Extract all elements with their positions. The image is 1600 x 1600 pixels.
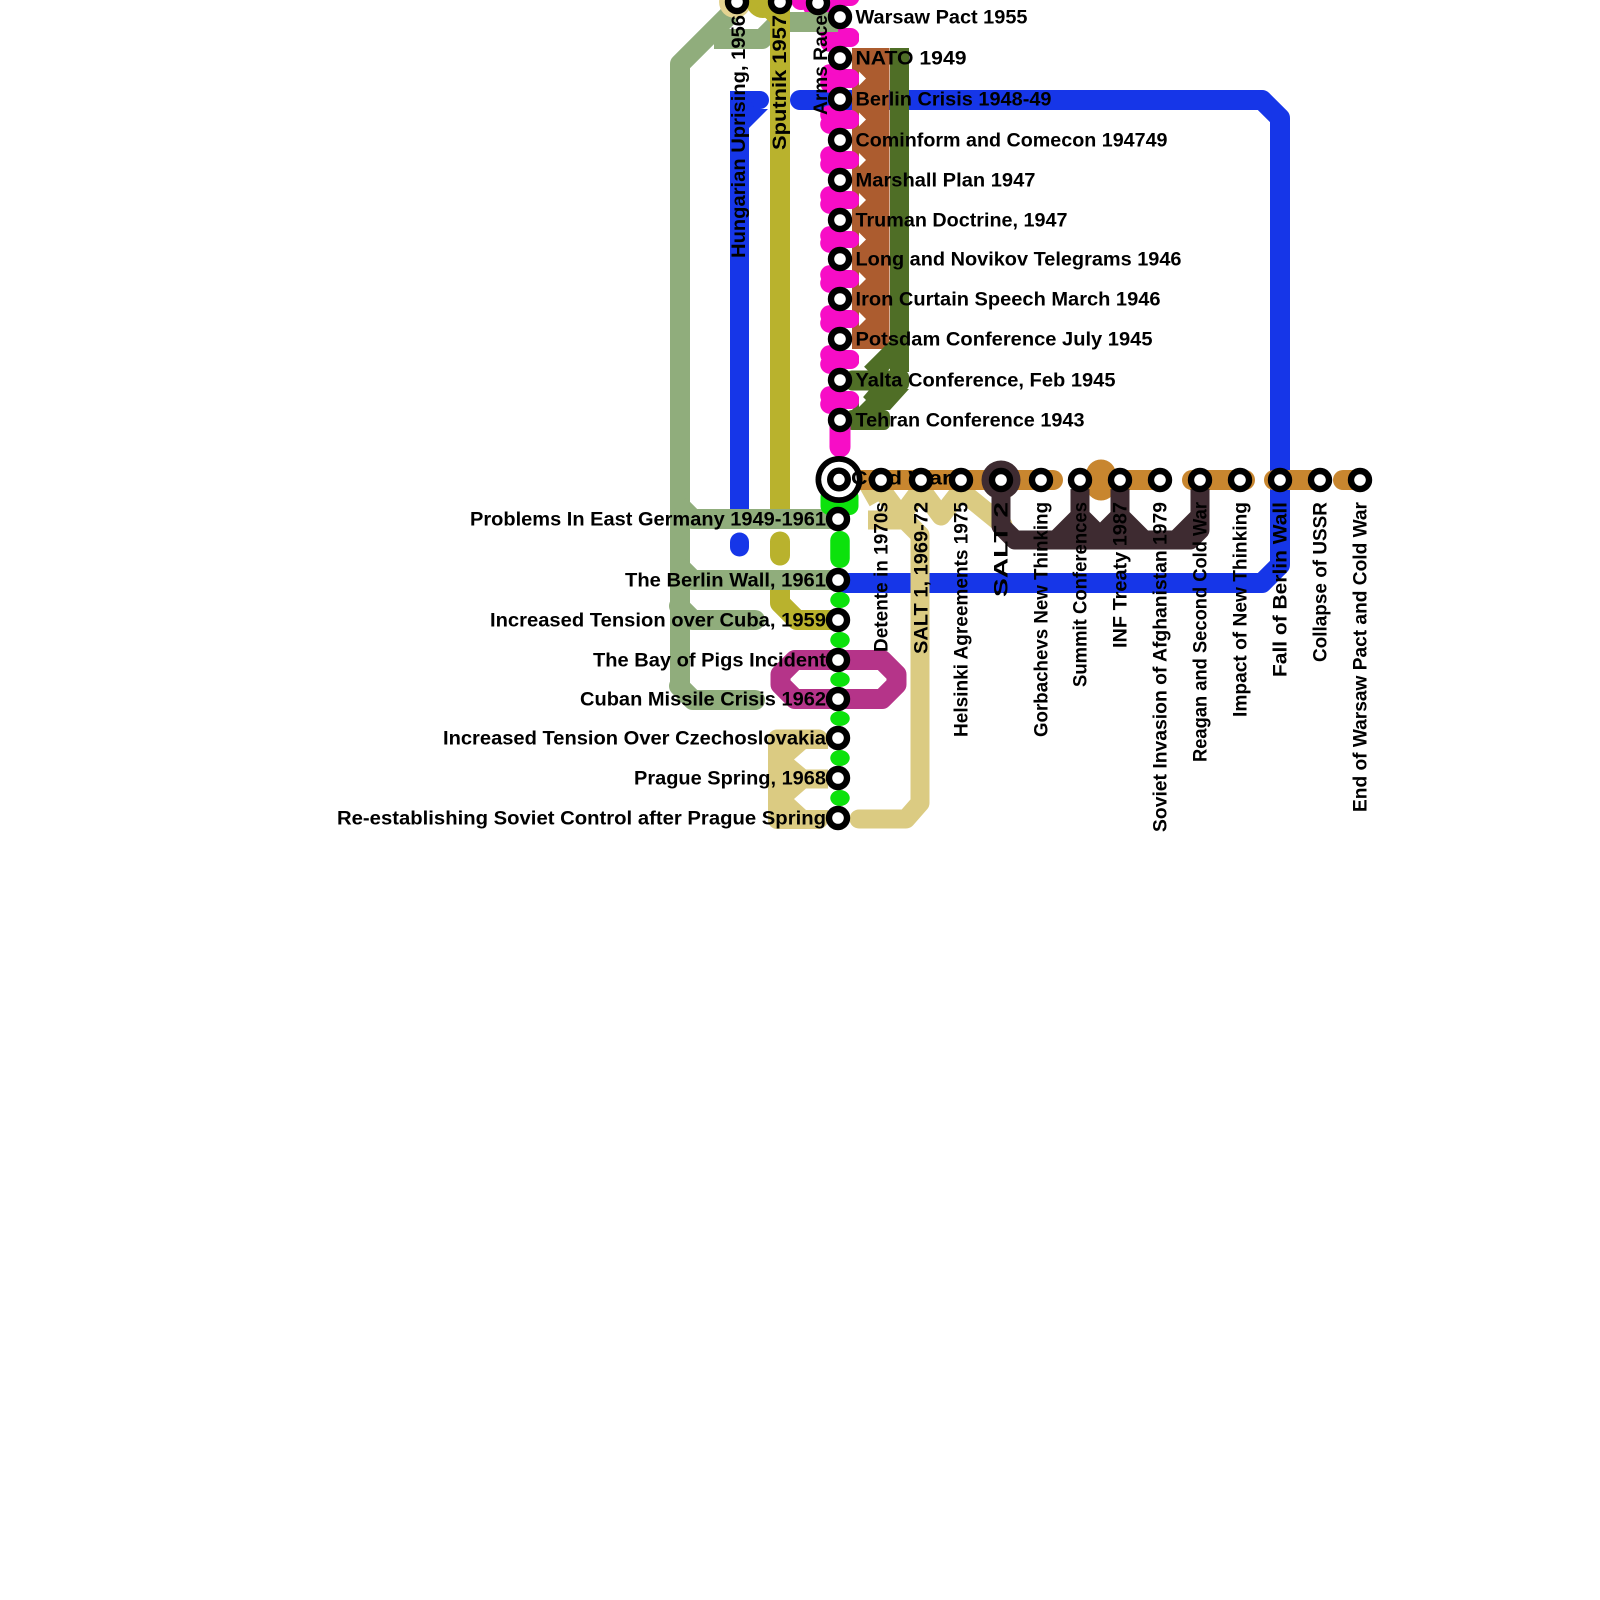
svg-text:Marshall Plan 1947: Marshall Plan 1947 <box>856 171 1036 192</box>
svg-text:Tehran Conference 1943: Tehran Conference 1943 <box>856 411 1085 432</box>
svg-text:Problems In East Germany 1949-: Problems In East Germany 1949-1961 <box>470 510 826 531</box>
svg-text:Impact of New Thinking: Impact of New Thinking <box>1231 502 1252 717</box>
svg-text:Soviet Invasion of Afghanistan: Soviet Invasion of Afghanistan 1979 <box>1151 502 1172 832</box>
svg-text:Prague Spring, 1968: Prague Spring, 1968 <box>634 769 826 790</box>
svg-text:Re-establishing Soviet Contro: Re-establishing Soviet Control after Pra… <box>337 809 826 830</box>
svg-text:Increased Tension over Cuba, 1: Increased Tension over Cuba, 1959 <box>490 611 826 632</box>
svg-text:End of Warsaw Pact and Cold Wa: End of Warsaw Pact and Cold War <box>1351 501 1372 812</box>
svg-text:Berlin Crisis 1948-49: Berlin Crisis 1948-49 <box>856 90 1052 111</box>
svg-text:SALT 1, 1969-72: SALT 1, 1969-72 <box>912 502 933 654</box>
svg-text:Gorbachevs New Thinking: Gorbachevs New Thinking <box>1032 502 1053 737</box>
svg-text:Sputnik 1957: Sputnik 1957 <box>770 15 791 150</box>
svg-text:Reagan and Second Cold War: Reagan and Second Cold War <box>1191 501 1212 762</box>
svg-text:Summit Conferences: Summit Conferences <box>1071 502 1092 687</box>
svg-text:Arms Race: Arms Race <box>811 15 832 115</box>
svg-text:Detente in 1970s: Detente in 1970s <box>872 502 893 652</box>
svg-text:Helsinki Agreements 1975: Helsinki Agreements 1975 <box>952 502 973 737</box>
svg-text:Cuban Missile Crisis 1962: Cuban Missile Crisis 1962 <box>580 690 826 711</box>
svg-text:Increased Tension Over Czechos: Increased Tension Over Czechoslovakia <box>443 729 826 750</box>
svg-text:Collapse of USSR: Collapse of USSR <box>1311 502 1332 662</box>
svg-text:NATO 1949: NATO 1949 <box>856 49 967 70</box>
svg-text:Truman Doctrine, 1947: Truman Doctrine, 1947 <box>856 211 1068 232</box>
svg-text:SALT 2: SALT 2 <box>992 502 1013 597</box>
svg-text:Fall of Berlin Wall: Fall of Berlin Wall <box>1271 502 1292 677</box>
svg-text:Iron Curtain Speech March 1946: Iron Curtain Speech March 1946 <box>856 290 1161 311</box>
svg-text:Yalta Conference, Feb 1945: Yalta Conference, Feb 1945 <box>856 371 1116 392</box>
svg-text:Warsaw Pact 1955: Warsaw Pact 1955 <box>856 8 1028 29</box>
svg-text:INF Treaty 1987: INF Treaty 1987 <box>1111 502 1132 648</box>
svg-text:The Bay of Pigs Incident: The Bay of Pigs Incident <box>593 651 827 672</box>
svg-text:Cold War: Cold War <box>851 469 952 490</box>
svg-text:Hungarian Uprising, 1956: Hungarian Uprising, 1956 <box>729 15 750 258</box>
svg-text:The Berlin Wall, 1961: The Berlin Wall, 1961 <box>625 571 826 592</box>
svg-text:Long and Novikov Telegrams 194: Long and Novikov Telegrams 1946 <box>856 250 1182 271</box>
svg-text:Cominform and Comecon 194749: Cominform and Comecon 194749 <box>856 131 1168 152</box>
svg-text:Potsdam Conference July 1945: Potsdam Conference July 1945 <box>856 330 1153 351</box>
